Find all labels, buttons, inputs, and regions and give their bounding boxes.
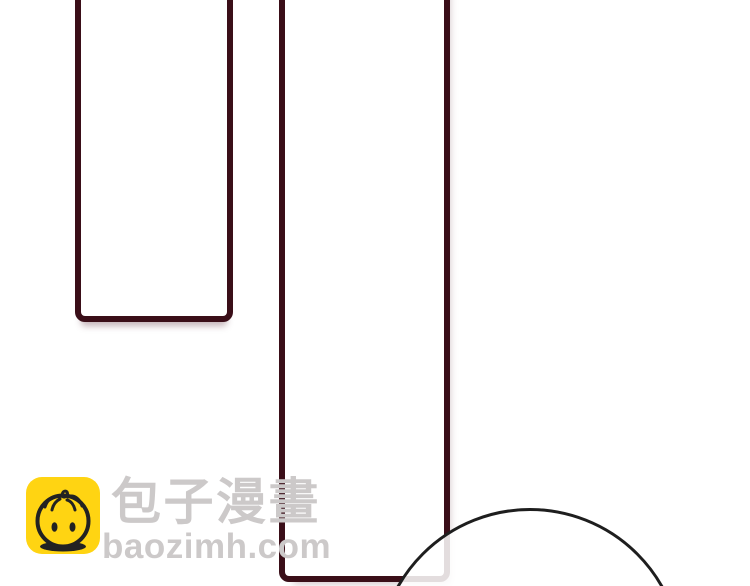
- watermark-text-block: 包子漫畫 baozimh.com: [111, 477, 331, 564]
- watermark-site-name: 包子漫畫: [111, 477, 331, 527]
- manga-page: 包子漫畫 baozimh.com: [0, 0, 750, 586]
- watermark-domain: baozimh.com: [102, 529, 331, 564]
- baozi-bun-face-icon: [26, 477, 100, 554]
- comic-panel-left: [75, 0, 233, 322]
- baozimh-watermark: 包子漫畫 baozimh.com: [26, 477, 331, 564]
